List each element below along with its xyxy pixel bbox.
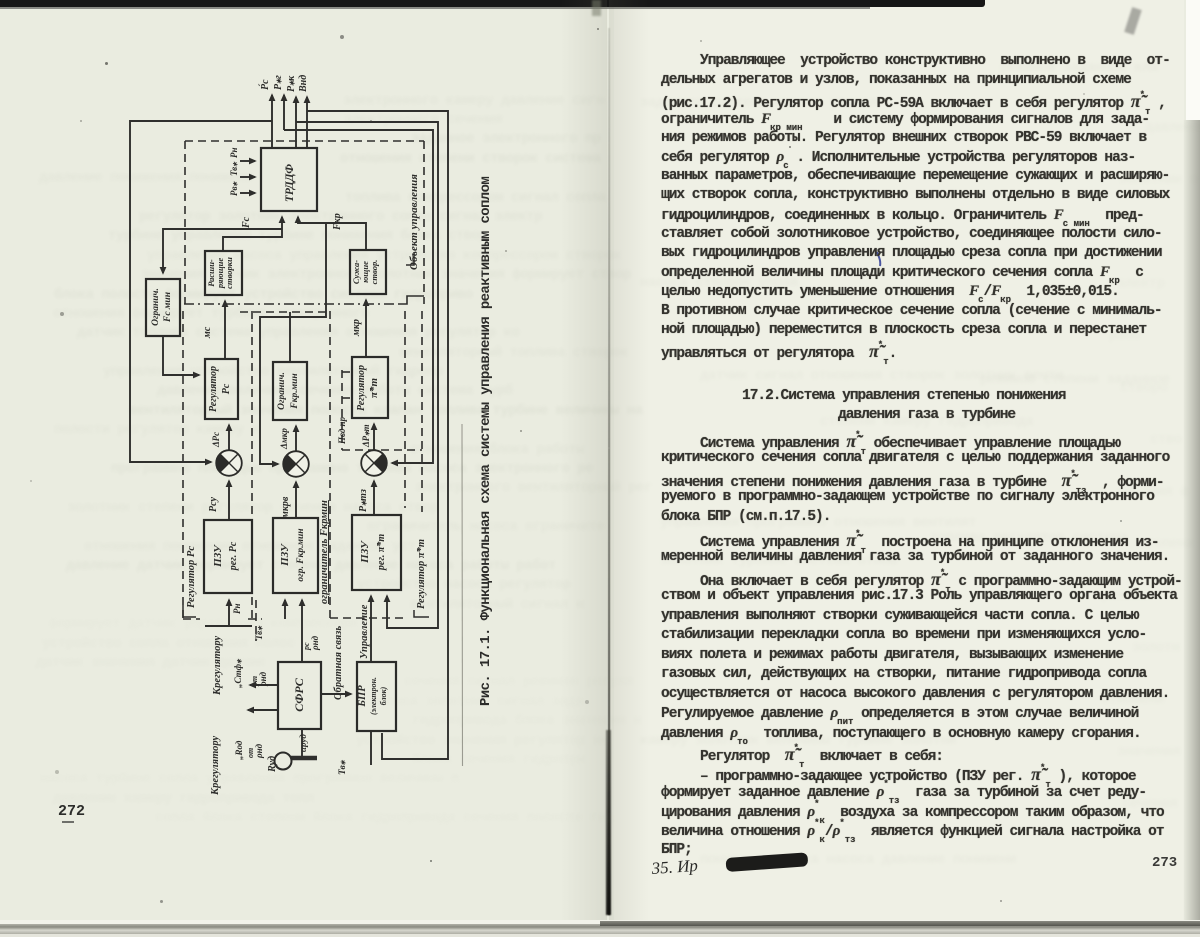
svg-text:Р́с: Р́с [258,79,271,90]
svg-text:Огранич.: Огранич. [277,372,287,410]
svg-text:Крегулятору: Крегулятору [212,636,223,696]
svg-text:Рис. 17.1. Функциональная схем: Рис. 17.1. Функциональная схема системы … [478,177,494,706]
svg-text:ρнд: ρнд [258,671,268,687]
svg-text:Регулятор: Регулятор [208,366,219,412]
svg-text:мс: мс [202,326,213,339]
svg-text:Обратная связь: Обратная связь [333,626,344,700]
svg-text:Крегулятору: Крегулятору [210,736,221,796]
svg-text:π̃*т: π̃*т [368,378,380,399]
svg-text:Р⁎тз: Р⁎тз [358,489,369,512]
svg-text:ρнд: ρнд [310,635,320,651]
svg-text:БПР: БПР [357,685,368,708]
svg-text:блок): блок) [379,686,388,705]
svg-text:мкрв: мкрв [280,496,291,519]
svg-text:Fс: Fс [241,216,252,229]
svg-text:αруд: αруд [298,734,308,752]
svg-text:35. Ир: 35. Ир [650,856,698,878]
svg-text:створки: створки [224,257,234,289]
svg-text:Рсу: Рсу [208,497,219,512]
svg-text:ПЗУ: ПЗУ [279,543,291,567]
svg-text:Р⁎г: Р⁎г [273,75,284,90]
svg-text:Δмкр: Δмкр [279,428,289,450]
svg-text:Огранич.: Огранич. [151,288,161,326]
svg-text:Рн: Рн [229,148,239,159]
svg-text:272: 272 [58,803,85,820]
svg-text:Регулятор π̃*т: Регулятор π̃*т [416,539,427,609]
svg-text:Тв⁎: Тв⁎ [338,759,348,775]
svg-text:Регулятор Рс: Регулятор Рс [186,546,197,608]
svg-text:ТРДДФ: ТРДДФ [284,164,296,202]
svg-text:Тв⁎: Тв⁎ [254,625,264,640]
svg-text:ПЗУ: ПЗУ [212,544,224,568]
svg-text:Рн: Рн [232,604,242,615]
svg-text:ΔРс: ΔРс [211,432,221,448]
svg-text:Тв⁎: Тв⁎ [229,161,239,176]
svg-text:(электрон.: (электрон. [369,677,378,715]
svg-text:огр. Fкр.мин: огр. Fкр.мин [296,528,306,581]
svg-text:Пвд пр: Пвд пр [337,416,347,445]
svg-text:273: 273 [1152,855,1177,871]
svg-text:рег. π̃*т: рег. π̃*т [376,534,387,571]
svg-text:Управление: Управление [359,604,370,659]
svg-text:Fс мин: Fс мин [163,292,173,323]
svg-text:ρнд: ρнд [254,743,264,759]
svg-text:Рв⁎: Рв⁎ [229,180,239,196]
svg-text:Р⁎к: Р⁎к [286,75,297,92]
svg-text:рег. Рс: рег. Рс [228,541,239,571]
svg-text:„Стф⁎: „Стф⁎ [233,658,243,688]
svg-text:ограничитель Fкрмин: ограничитель Fкрмин [319,500,330,604]
svg-text:ПЗУ: ПЗУ [359,540,371,564]
svg-text:мкр: мкр [351,319,362,337]
svg-text:Регулятор: Регулятор [356,365,367,411]
svg-text:Rуд: Rуд [267,756,278,773]
svg-text:„Rод: „Rод [234,740,244,760]
svg-text:СФРС: СФРС [292,677,306,712]
svg-text:створ.: створ. [369,260,379,285]
svg-text:Внд: Внд [298,75,309,93]
svg-text:Fкр.мин: Fкр.мин [290,373,300,409]
svg-text:Fкр: Fкр [332,213,343,231]
svg-text:Рс: Рс [221,383,232,394]
svg-text:ΔР⁎т: ΔР⁎т [361,424,371,448]
